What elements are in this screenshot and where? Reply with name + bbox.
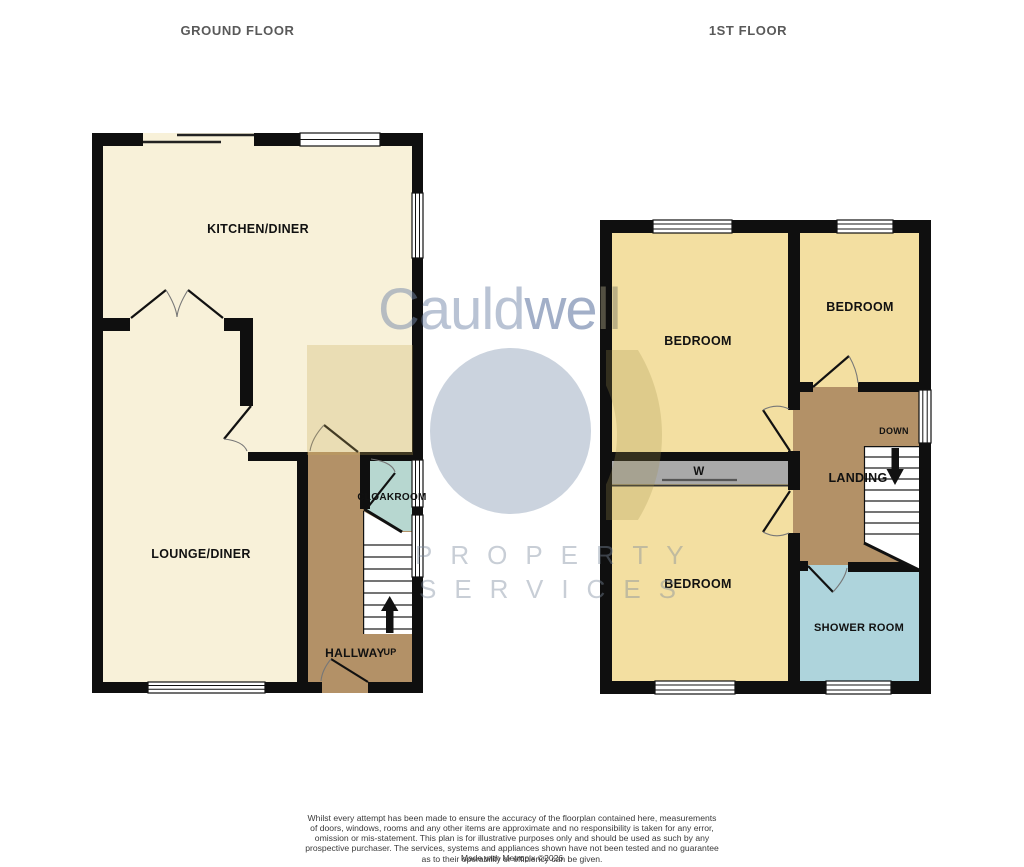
ground-floor-title: GROUND FLOOR (140, 23, 335, 38)
watermark-logo-circle (430, 348, 591, 514)
label-hallway: HALLWAY (325, 646, 385, 660)
label-wardrobe: W (693, 466, 704, 478)
label-up: UP (383, 647, 396, 657)
window-bed1-top (653, 220, 732, 233)
window-shower-bottom (826, 681, 891, 694)
window-landing-right (919, 390, 931, 443)
first-floor-plan: BEDROOM BEDROOM BEDROOM SHOWER ROOM LAND… (595, 215, 940, 705)
window-bed2-top (837, 220, 893, 233)
label-bedroom-bottom: BEDROOM (664, 577, 731, 591)
window-bed3-bottom (655, 681, 735, 694)
label-bedroom-top-right: BEDROOM (826, 300, 893, 314)
window-lounge-bottom (148, 682, 265, 693)
label-down: DOWN (879, 426, 909, 436)
label-landing: LANDING (828, 471, 887, 485)
window-kitchen-right (412, 193, 423, 258)
window-stairs-right (412, 515, 423, 577)
made-with-text: Made with Metropix ©2026 (262, 853, 762, 863)
label-shower-room: SHOWER ROOM (814, 622, 904, 634)
label-cloakroom: CLOAKROOM (357, 492, 426, 503)
floorplan-page: GROUND FLOOR 1ST FLOOR (0, 0, 1024, 867)
label-lounge-diner: LOUNGE/DINER (151, 547, 250, 561)
first-floor-title: 1ST FLOOR (650, 23, 846, 38)
ground-floor-plan: KITCHEN/DINER LOUNGE/DINER CLOAKROOM HAL… (85, 125, 430, 705)
brand-part-2: we (525, 277, 597, 342)
window-kitchen-top (300, 133, 380, 146)
label-kitchen-diner: KITCHEN/DINER (207, 222, 309, 236)
label-bedroom-top-left: BEDROOM (664, 334, 731, 348)
